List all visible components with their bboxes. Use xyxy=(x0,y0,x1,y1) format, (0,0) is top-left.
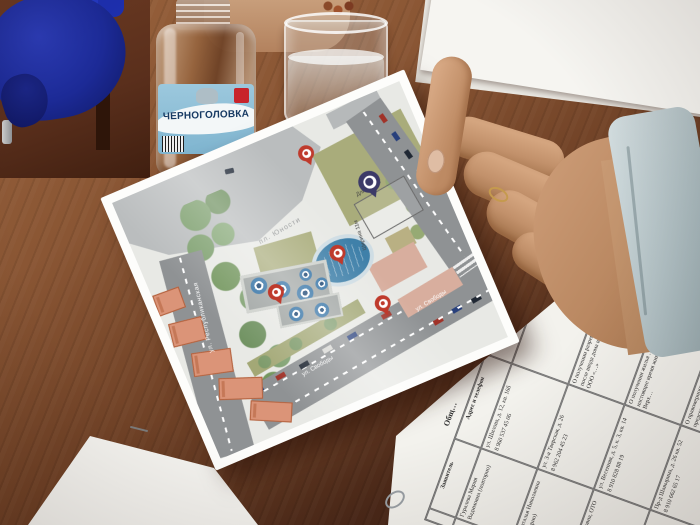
building-row-left xyxy=(218,377,263,401)
thumbnail xyxy=(426,148,447,174)
glass-rim xyxy=(284,12,388,34)
label-barcode xyxy=(162,136,184,152)
label-mountain-crest xyxy=(196,88,218,104)
label-red-square-logo xyxy=(234,88,249,103)
metal-clip xyxy=(2,120,12,144)
building-row-left xyxy=(250,400,293,422)
photo-scene: ЧЕРНОГОЛОВКА Общ… Заявитель Адрес и теле… xyxy=(0,0,700,525)
document-title: Общ… xyxy=(442,401,459,428)
